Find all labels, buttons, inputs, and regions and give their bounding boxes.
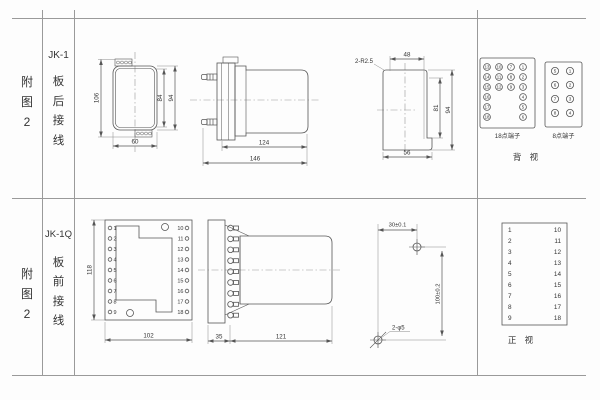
block8-label: 8点端子 xyxy=(552,132,574,140)
wiring-char: 接 xyxy=(42,293,75,312)
svg-text:3: 3 xyxy=(522,85,525,90)
svg-text:3: 3 xyxy=(114,247,117,253)
svg-text:11: 11 xyxy=(497,75,502,80)
svg-text:6: 6 xyxy=(508,282,512,289)
screw-stem xyxy=(234,313,239,317)
terminal-circles-18: 131071141182151293164175186 xyxy=(484,64,527,121)
svg-text:10: 10 xyxy=(177,226,183,232)
jk1q-drilling-plan-drawing: 30±0.1 100±0.2 2-φ5 xyxy=(350,210,462,350)
screw-head xyxy=(228,247,234,253)
svg-text:7: 7 xyxy=(510,65,513,70)
datasheet-page: 附 图 2 JK-1 板 后 接 线 附 图 2 JK-1Q 板 前 接 线 xyxy=(0,0,600,400)
dimension-lines xyxy=(101,60,175,147)
jk1q-front-terminal-table: 123456789 101112131415161718 正 视 xyxy=(488,213,588,351)
screw-stem xyxy=(234,248,239,252)
screw-stem xyxy=(234,291,239,295)
svg-text:13: 13 xyxy=(177,258,183,264)
jk1q-side-view-drawing: 35 121 xyxy=(197,210,347,350)
wiring-char: 板 xyxy=(42,73,75,93)
dim-48-label: 48 xyxy=(404,52,411,59)
svg-text:11: 11 xyxy=(554,238,561,245)
terminal-dot xyxy=(108,310,112,314)
corner-radius-note: 2-R2.5 xyxy=(355,59,374,65)
dim-121-label: 121 xyxy=(276,334,287,341)
screw-stem xyxy=(234,281,239,285)
wiring-char: 线 xyxy=(42,132,75,152)
terminal-circles-8: 51627384 xyxy=(551,67,573,116)
terminal-screw xyxy=(202,119,218,125)
svg-text:2: 2 xyxy=(508,238,512,245)
terminal-dot xyxy=(185,300,189,304)
dimension-lines xyxy=(378,230,442,338)
svg-text:17: 17 xyxy=(554,304,562,311)
dim-30-label: 30±0.1 xyxy=(389,223,407,229)
svg-text:8: 8 xyxy=(554,111,557,116)
screw-stem xyxy=(234,302,239,306)
screw-head xyxy=(228,302,234,308)
svg-text:5: 5 xyxy=(554,69,557,74)
svg-text:4: 4 xyxy=(508,260,512,267)
terminal-dot xyxy=(108,289,112,293)
svg-text:17: 17 xyxy=(177,300,183,306)
screw-stem xyxy=(234,259,239,263)
svg-text:9: 9 xyxy=(510,85,513,90)
svg-text:12: 12 xyxy=(554,249,562,256)
grid-line-middle xyxy=(12,198,586,199)
terminal-screw xyxy=(202,74,218,80)
grid-line-top xyxy=(12,18,586,19)
screw-head xyxy=(228,269,234,275)
terminal-numbers-left: 123456789 xyxy=(508,227,512,322)
dim-102-label: 102 xyxy=(143,333,154,340)
terminal-screw-column xyxy=(228,225,239,318)
svg-text:18: 18 xyxy=(177,310,183,316)
jk1-panel-cutout-drawing: 2-R2.5 48 81 94 56 xyxy=(353,43,465,165)
terminal-dot xyxy=(108,258,112,262)
svg-text:13: 13 xyxy=(554,260,562,267)
terminal-dot xyxy=(108,247,112,251)
figure-label-row2: 附 图 2 xyxy=(12,264,42,324)
svg-text:3: 3 xyxy=(508,249,512,256)
dim-106-label: 106 xyxy=(94,92,101,103)
svg-text:1: 1 xyxy=(114,226,117,232)
dim-60-label: 60 xyxy=(132,139,139,146)
figure-label-row1: 附 图 2 xyxy=(12,72,42,132)
model-label-jk1: JK-1 xyxy=(42,50,75,61)
svg-text:14: 14 xyxy=(554,271,562,278)
grid-line-bottom xyxy=(12,375,586,376)
dim-124-label: 124 xyxy=(259,140,270,147)
terminal-dot xyxy=(185,237,189,241)
extension-lines xyxy=(208,306,332,344)
dim-35-label: 35 xyxy=(216,334,223,341)
screw-head xyxy=(228,280,234,286)
svg-text:6: 6 xyxy=(522,115,525,120)
svg-text:15: 15 xyxy=(554,282,562,289)
svg-text:1: 1 xyxy=(522,65,525,70)
dim-81-label: 81 xyxy=(433,104,440,111)
svg-text:16: 16 xyxy=(485,95,490,100)
mounting-hole xyxy=(162,224,169,231)
svg-text:5: 5 xyxy=(508,271,512,278)
svg-text:13: 13 xyxy=(485,65,490,70)
terminal-dot xyxy=(185,226,189,230)
dim-118-label: 118 xyxy=(87,265,94,275)
svg-text:4: 4 xyxy=(114,258,117,264)
dim-94-label: 94 xyxy=(168,94,175,101)
front-view-label: 正 视 xyxy=(508,335,536,345)
screw-head xyxy=(228,236,234,242)
svg-text:2: 2 xyxy=(114,237,117,243)
figure-char: 2 xyxy=(12,304,42,324)
figure-char: 图 xyxy=(12,92,42,112)
terminal-dot xyxy=(185,279,189,283)
wiring-char: 前 xyxy=(42,273,75,292)
svg-text:10: 10 xyxy=(554,227,562,234)
dim-146-label: 146 xyxy=(250,156,261,163)
svg-text:17: 17 xyxy=(485,105,490,110)
extension-lines xyxy=(98,60,178,150)
svg-text:10: 10 xyxy=(497,65,502,70)
figure-char: 附 xyxy=(12,264,42,284)
stepped-cutout xyxy=(116,226,172,312)
svg-text:7: 7 xyxy=(554,97,557,102)
figure-char: 附 xyxy=(12,72,42,92)
dim-56-label: 56 xyxy=(404,150,411,157)
svg-text:7: 7 xyxy=(508,293,512,300)
figure-char: 2 xyxy=(12,112,42,132)
terminal-dot xyxy=(185,247,189,251)
terminal-dot xyxy=(185,289,189,293)
terminal-block-8 xyxy=(545,62,582,127)
wiring-label-row2: 板 前 接 线 xyxy=(42,254,75,331)
svg-text:18: 18 xyxy=(485,115,490,120)
plate-terminals-right: 101112131415161718 xyxy=(177,226,188,316)
dim-100-label: 100±0.2 xyxy=(436,284,442,305)
jk1-front-view-drawing: 106 84 94 60 xyxy=(88,46,188,158)
hole-top xyxy=(409,239,425,255)
svg-text:15: 15 xyxy=(177,279,183,285)
svg-text:4: 4 xyxy=(569,111,572,116)
dimension-lines xyxy=(383,59,452,157)
svg-text:14: 14 xyxy=(485,75,490,80)
hole-diameter-note: 2-φ5 xyxy=(392,326,405,332)
terminal-dot xyxy=(185,310,189,314)
terminal-dot xyxy=(108,226,112,230)
terminal-dot xyxy=(108,237,112,241)
svg-text:3: 3 xyxy=(569,97,572,102)
jk1q-plate-view-drawing: 123456789 101112131415161718 118 102 xyxy=(83,210,205,352)
figure-char: 图 xyxy=(12,284,42,304)
terminal-dot xyxy=(108,300,112,304)
model-label-jk1q: JK-1Q xyxy=(41,229,76,240)
svg-text:14: 14 xyxy=(177,268,183,274)
hole-bottom xyxy=(370,332,386,348)
svg-text:5: 5 xyxy=(114,268,117,274)
extension-lines xyxy=(374,56,455,160)
terminal-numbers-right: 101112131415161718 xyxy=(554,227,562,322)
block18-label: 18点端子 xyxy=(495,132,520,140)
svg-text:16: 16 xyxy=(177,289,183,295)
svg-text:9: 9 xyxy=(114,310,117,316)
jk1-rear-terminal-view: 131071141182151293164175186 51627384 18点… xyxy=(475,50,587,168)
jk1-side-view-drawing: 124 146 xyxy=(188,44,338,184)
wiring-char: 接 xyxy=(42,112,75,132)
svg-text:18: 18 xyxy=(554,315,562,322)
svg-text:7: 7 xyxy=(114,289,117,295)
svg-text:1: 1 xyxy=(508,227,512,234)
svg-text:8: 8 xyxy=(510,75,513,80)
relay-side-outline xyxy=(202,57,309,140)
svg-text:6: 6 xyxy=(554,83,557,88)
svg-text:8: 8 xyxy=(114,300,117,306)
screw-stem xyxy=(234,237,239,241)
svg-text:12: 12 xyxy=(177,247,183,253)
svg-text:15: 15 xyxy=(485,85,490,90)
svg-text:16: 16 xyxy=(554,293,562,300)
wiring-label-row1: 板 后 接 线 xyxy=(42,73,75,151)
svg-text:4: 4 xyxy=(522,95,525,100)
relay-side-outline xyxy=(208,220,332,323)
wiring-char: 板 xyxy=(42,254,75,273)
svg-text:8: 8 xyxy=(508,304,512,311)
terminal-dot xyxy=(185,268,189,272)
svg-text:2: 2 xyxy=(522,75,525,80)
wiring-char: 后 xyxy=(42,93,75,113)
svg-text:1: 1 xyxy=(569,69,572,74)
svg-text:2: 2 xyxy=(569,83,572,88)
screw-head xyxy=(228,258,234,264)
screw-head xyxy=(228,312,234,318)
screw-head xyxy=(228,225,234,231)
dim-94-label: 94 xyxy=(445,106,452,113)
svg-text:12: 12 xyxy=(497,85,502,90)
mounting-hole xyxy=(127,310,134,317)
screw-head xyxy=(228,291,234,297)
rear-view-label: 背 视 xyxy=(513,152,541,162)
svg-text:11: 11 xyxy=(178,237,184,243)
wiring-char: 线 xyxy=(42,312,75,331)
svg-text:5: 5 xyxy=(522,105,525,110)
terminal-dot xyxy=(108,279,112,283)
dim-84-label: 84 xyxy=(157,94,164,101)
terminal-dot xyxy=(185,258,189,262)
terminal-dot xyxy=(108,268,112,272)
svg-text:6: 6 xyxy=(114,279,117,285)
plate-terminals-left: 123456789 xyxy=(108,226,116,316)
svg-text:9: 9 xyxy=(508,315,512,322)
